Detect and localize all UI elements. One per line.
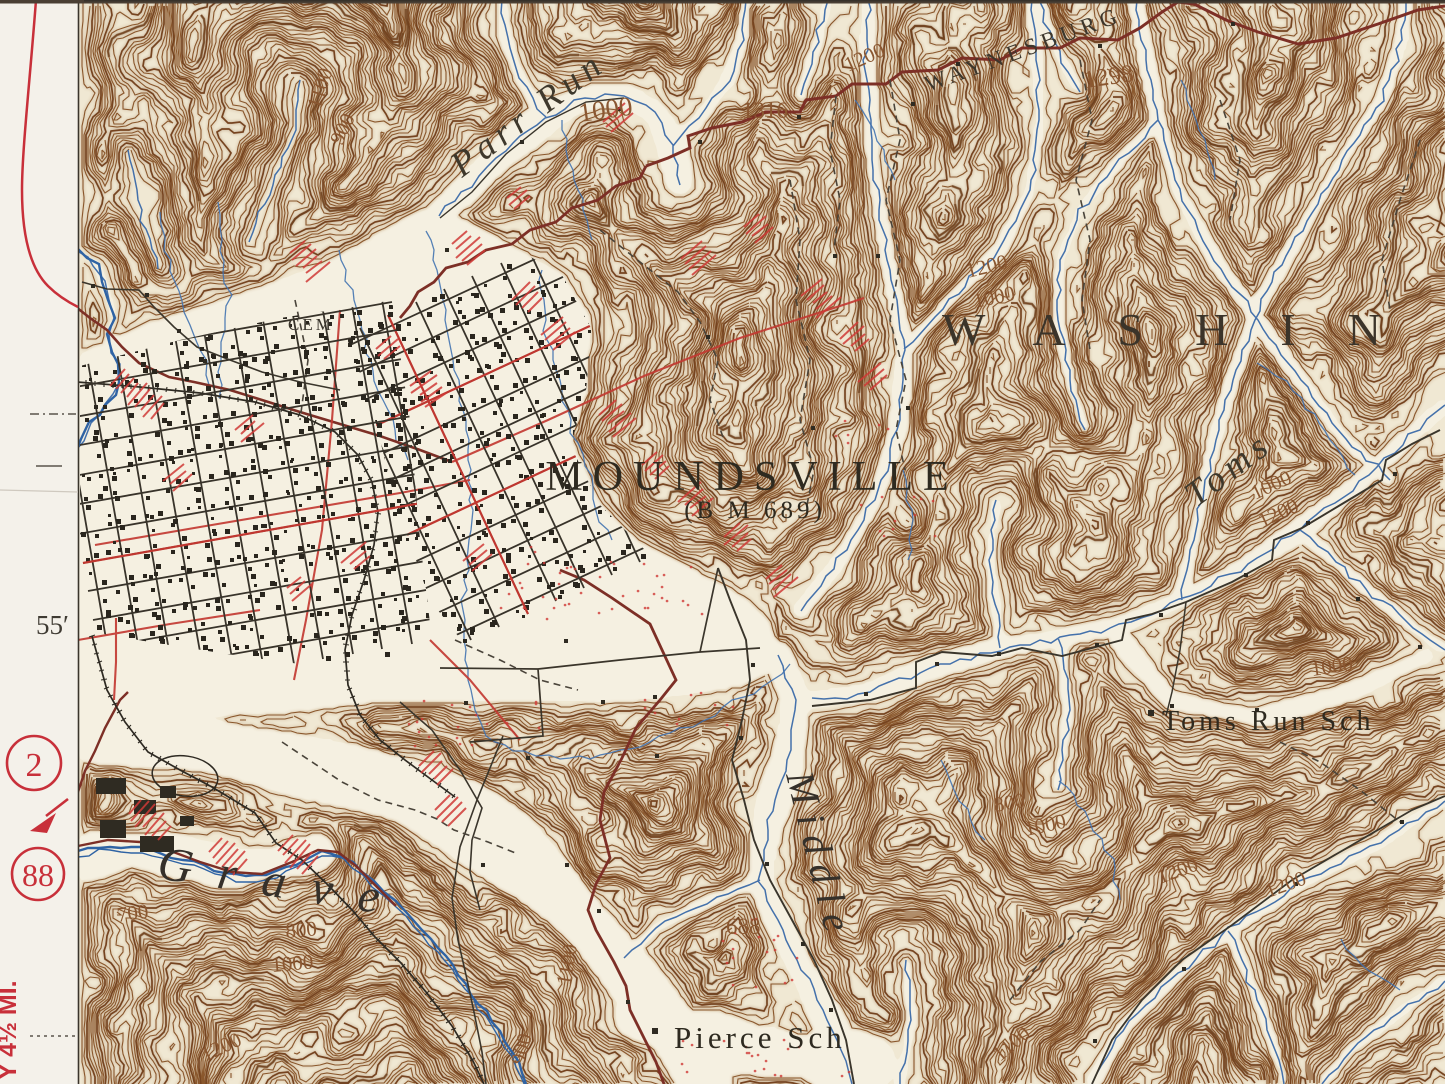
svg-text:800: 800 — [284, 916, 317, 943]
svg-text:MOUNDSVILLE: MOUNDSVILLE — [545, 454, 958, 500]
svg-text:88: 88 — [22, 857, 54, 893]
svg-text:Toms Run Sch: Toms Run Sch — [1162, 706, 1375, 737]
svg-text:Pierce Sch: Pierce Sch — [674, 1020, 846, 1055]
svg-text:1000: 1000 — [270, 949, 314, 977]
svg-text:CEM: CEM — [288, 315, 334, 334]
svg-text:1316: 1316 — [742, 98, 788, 123]
svg-text:WASHIN: WASHIN — [942, 304, 1433, 355]
svg-text:55′: 55′ — [36, 610, 69, 640]
svg-text:700: 700 — [115, 899, 150, 927]
svg-text:2: 2 — [26, 747, 43, 784]
svg-text:(B M 689): (B M 689) — [684, 497, 826, 524]
svg-text:688: 688 — [726, 914, 761, 939]
svg-text:Y 4½ MI.: Y 4½ MI. — [0, 980, 22, 1080]
